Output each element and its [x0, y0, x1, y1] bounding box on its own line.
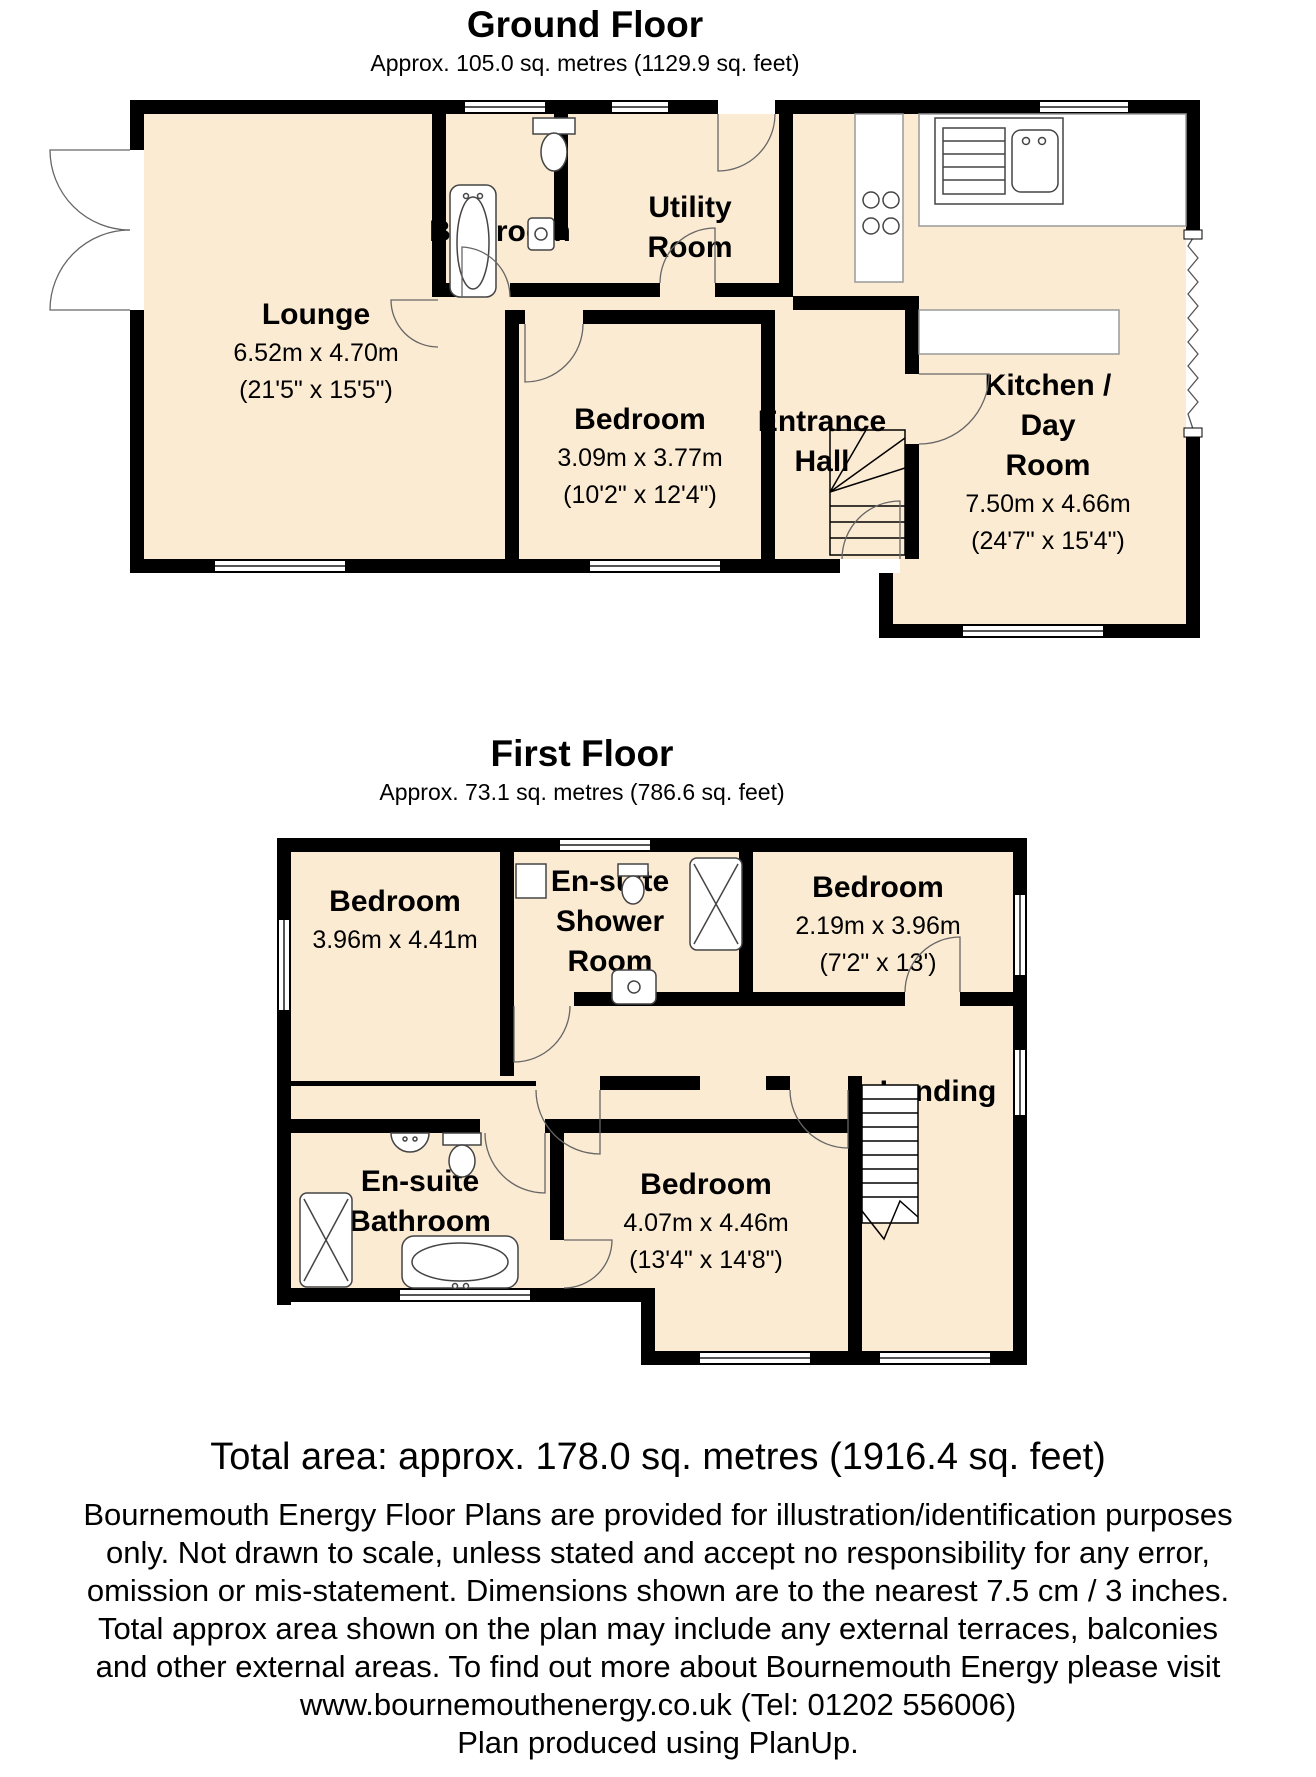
room-label-bathroom: Bathroom — [429, 212, 571, 252]
room-name: Bedroom — [795, 868, 960, 908]
disclaimer-line: omission or mis-statement. Dimensions sh… — [0, 1572, 1316, 1610]
ground-floor-title: Ground Floor — [0, 4, 1170, 46]
window — [1013, 895, 1027, 975]
room-dim-metric: 4.07m x 4.46m — [623, 1205, 788, 1242]
room-name: Bedroom — [557, 400, 722, 440]
first-floor-title: First Floor — [0, 733, 1164, 775]
room-dim-imperial: (13'4" x 14'8") — [623, 1242, 788, 1279]
room-dim-imperial: (10'2" x 12'4") — [557, 477, 722, 514]
floor-plan-page: Ground Floor Approx. 105.0 sq. metres (1… — [0, 0, 1316, 1777]
room-name: Room — [551, 942, 669, 982]
room-label-bedroom2: Bedroom 2.19m x 3.96m (7'2" x 13') — [795, 868, 960, 982]
wall — [510, 283, 568, 297]
room-name: Kitchen / — [965, 366, 1130, 406]
wall — [766, 1076, 790, 1090]
room-name: En-suite — [349, 1162, 491, 1202]
ground-floor-subtitle: Approx. 105.0 sq. metres (1129.9 sq. fee… — [0, 50, 1170, 77]
room-name: Bedroom — [312, 882, 477, 922]
front-door-opening — [840, 559, 900, 573]
disclaimer-line: Plan produced using PlanUp. — [0, 1724, 1316, 1762]
room-label-shower-room: En-suite Shower Room — [551, 862, 669, 982]
kitchen-extension-area — [893, 559, 1186, 624]
room-label-lounge: Lounge 6.52m x 4.70m (21'5" x 15'5") — [233, 295, 398, 409]
window — [400, 1288, 530, 1302]
wall — [905, 310, 919, 374]
window — [1013, 1050, 1027, 1115]
room-label-bedroom3: Bedroom 4.07m x 4.46m (13'4" x 14'8") — [623, 1165, 788, 1279]
wall — [600, 1076, 700, 1090]
room-name: Day — [965, 406, 1130, 446]
room-dim-metric: 2.19m x 3.96m — [795, 908, 960, 945]
room-label-bedroom: Bedroom 3.09m x 3.77m (10'2" x 12'4") — [557, 400, 722, 514]
bifold-door-opening — [1186, 238, 1200, 429]
partition — [291, 1081, 536, 1086]
wall — [568, 283, 660, 297]
window — [277, 920, 291, 1010]
wall — [545, 1119, 848, 1133]
room-name: Shower — [551, 902, 669, 942]
door-arc — [50, 150, 130, 230]
disclaimer-line: Total approx area shown on the plan may … — [0, 1610, 1316, 1648]
room-name: Entrance — [758, 402, 886, 442]
door-arc — [50, 230, 130, 310]
window — [560, 838, 650, 852]
first-floor-lower-area — [655, 1288, 1013, 1351]
wall — [848, 1076, 862, 1365]
room-label-landing: Landing — [880, 1072, 997, 1112]
room-name: Landing — [880, 1072, 997, 1112]
room-name: Room — [648, 228, 733, 268]
window — [700, 1351, 810, 1365]
wall — [432, 283, 462, 297]
room-dim-metric: 6.52m x 4.70m — [233, 335, 398, 372]
wall — [550, 1133, 564, 1240]
room-dim-metric: 3.09m x 3.77m — [557, 440, 722, 477]
window — [880, 1351, 990, 1365]
wall — [505, 324, 519, 559]
wall — [960, 992, 1013, 1006]
wall — [574, 992, 905, 1006]
wall — [779, 114, 793, 297]
total-area-text: Total area: approx. 178.0 sq. metres (19… — [0, 1436, 1316, 1479]
room-label-utility: Utility Room — [648, 188, 733, 268]
window — [465, 100, 545, 114]
room-dim-imperial: (24'7" x 15'4") — [965, 523, 1130, 560]
disclaimer-line: only. Not drawn to scale, unless stated … — [0, 1534, 1316, 1572]
room-label-ensuite-bathroom: En-suite Bathroom — [349, 1162, 491, 1242]
door-opening — [718, 100, 775, 114]
room-name: Bathroom — [349, 1202, 491, 1242]
window — [215, 559, 345, 573]
room-name: Utility — [648, 188, 733, 228]
room-name: En-suite — [551, 862, 669, 902]
room-dim-metric: 3.96m x 4.41m — [312, 922, 477, 959]
window — [1040, 100, 1128, 114]
wall — [277, 838, 1027, 852]
wall — [500, 852, 514, 1076]
wall — [905, 444, 919, 559]
room-dim-imperial: (21'5" x 15'5") — [233, 372, 398, 409]
room-name: Bedroom — [623, 1165, 788, 1205]
room-label-bedroom1: Bedroom 3.96m x 4.41m — [312, 882, 477, 959]
disclaimer: Bournemouth Energy Floor Plans are provi… — [0, 1496, 1316, 1762]
room-name: Lounge — [233, 295, 398, 335]
room-name: Room — [965, 446, 1130, 486]
room-name: Bathroom — [429, 212, 571, 252]
window — [612, 100, 668, 114]
wall — [739, 852, 753, 1006]
french-door-opening — [130, 150, 144, 310]
wall — [793, 296, 919, 310]
wall — [583, 310, 775, 324]
room-label-kitchen: Kitchen / Day Room 7.50m x 4.66m (24'7" … — [965, 366, 1130, 560]
room-dim-imperial: (7'2" x 13') — [795, 945, 960, 982]
disclaimer-line: and other external areas. To find out mo… — [0, 1648, 1316, 1686]
window — [590, 559, 720, 573]
room-dim-metric: 7.50m x 4.66m — [965, 486, 1130, 523]
room-label-entrance-hall: Entrance Hall — [758, 402, 886, 482]
wall — [291, 1119, 480, 1133]
disclaimer-line: Bournemouth Energy Floor Plans are provi… — [0, 1496, 1316, 1534]
room-name: Hall — [758, 442, 886, 482]
wall — [432, 114, 446, 297]
disclaimer-line: www.bournemouthenergy.co.uk (Tel: 01202 … — [0, 1686, 1316, 1724]
first-floor-subtitle: Approx. 73.1 sq. metres (786.6 sq. feet) — [0, 779, 1164, 806]
window — [963, 624, 1103, 638]
wall — [505, 310, 525, 324]
